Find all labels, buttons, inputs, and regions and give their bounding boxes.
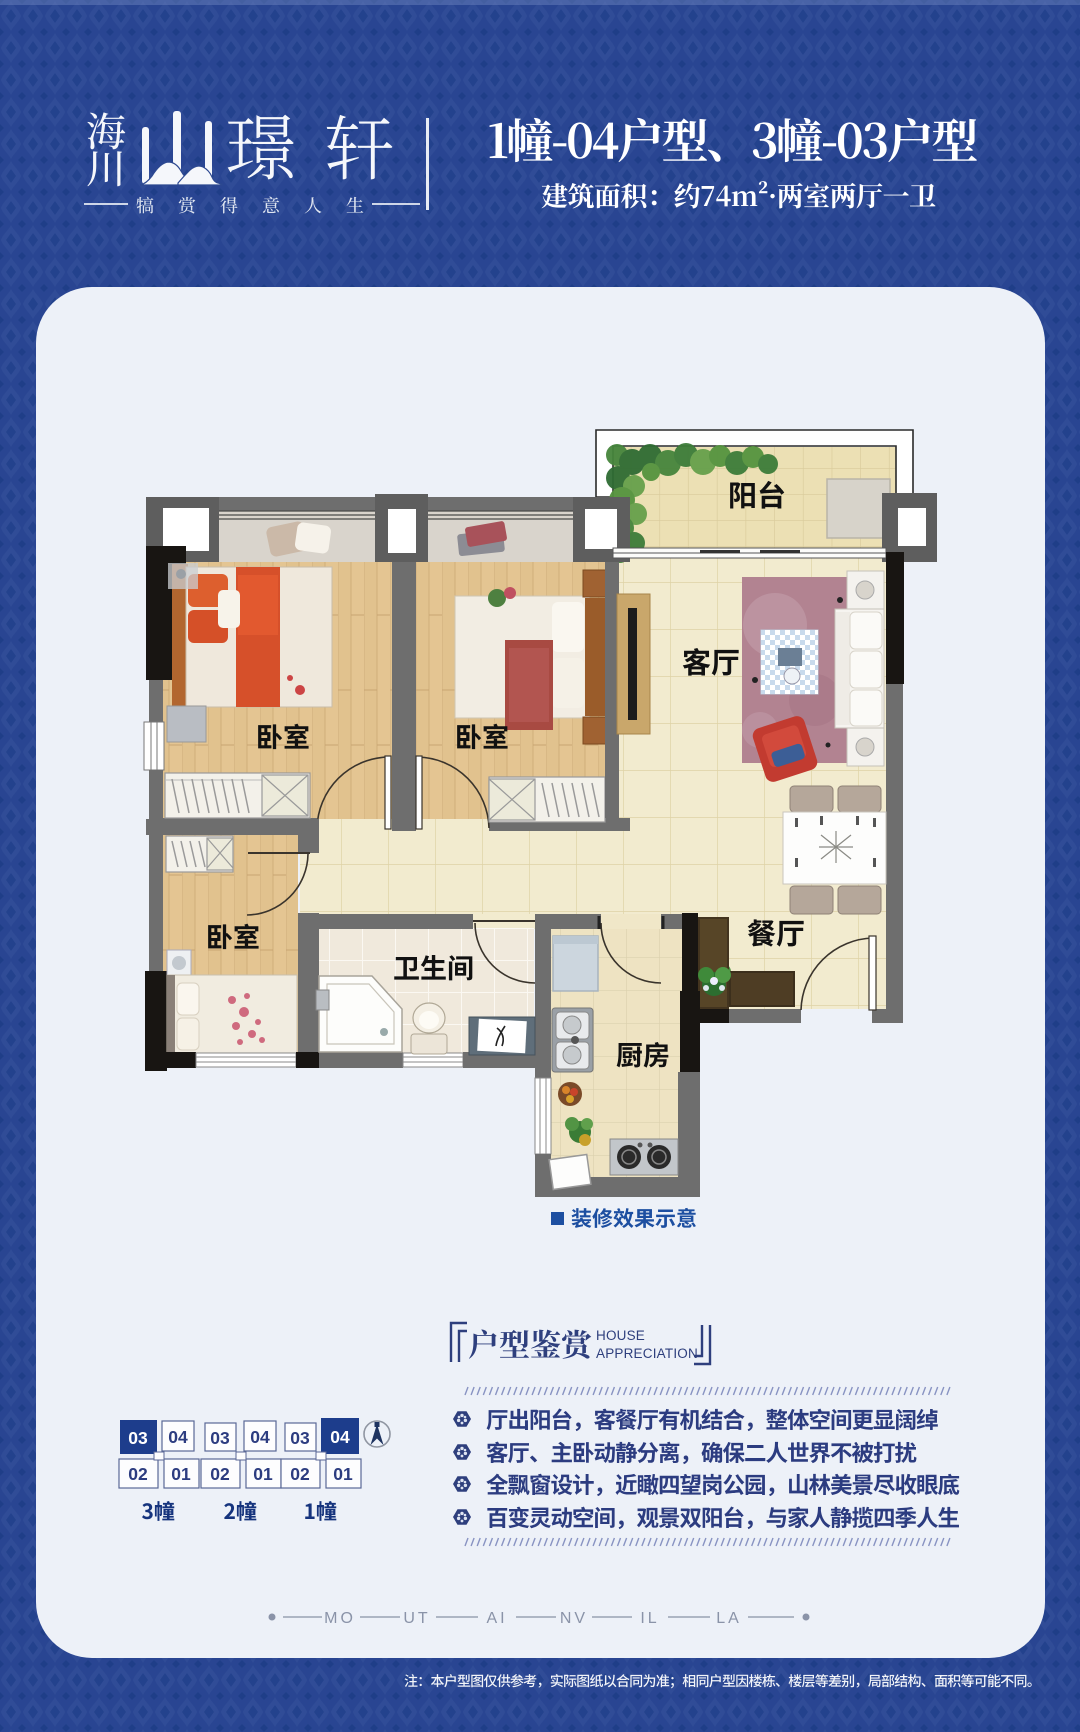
- svg-text:03: 03: [128, 1428, 148, 1448]
- svg-text:03: 03: [210, 1428, 230, 1448]
- svg-text:04: 04: [330, 1427, 350, 1447]
- svg-text:02: 02: [210, 1464, 230, 1484]
- svg-text:04: 04: [168, 1427, 188, 1447]
- svg-text:MO: MO: [324, 1610, 356, 1627]
- svg-text:01: 01: [171, 1464, 191, 1484]
- svg-text:NV: NV: [560, 1610, 588, 1627]
- svg-text:UT: UT: [403, 1610, 430, 1627]
- svg-text:04: 04: [250, 1427, 270, 1447]
- svg-text:AI: AI: [486, 1610, 507, 1627]
- svg-text:02: 02: [290, 1464, 310, 1484]
- svg-text:01: 01: [333, 1464, 353, 1484]
- svg-text:APPRECIATION: APPRECIATION: [596, 1346, 698, 1361]
- svg-text:IL: IL: [640, 1610, 659, 1627]
- svg-text:02: 02: [128, 1464, 148, 1484]
- svg-text:01: 01: [253, 1464, 273, 1484]
- svg-text:03: 03: [290, 1428, 310, 1448]
- svg-text:HOUSE: HOUSE: [596, 1328, 645, 1343]
- svg-text:LA: LA: [716, 1610, 742, 1627]
